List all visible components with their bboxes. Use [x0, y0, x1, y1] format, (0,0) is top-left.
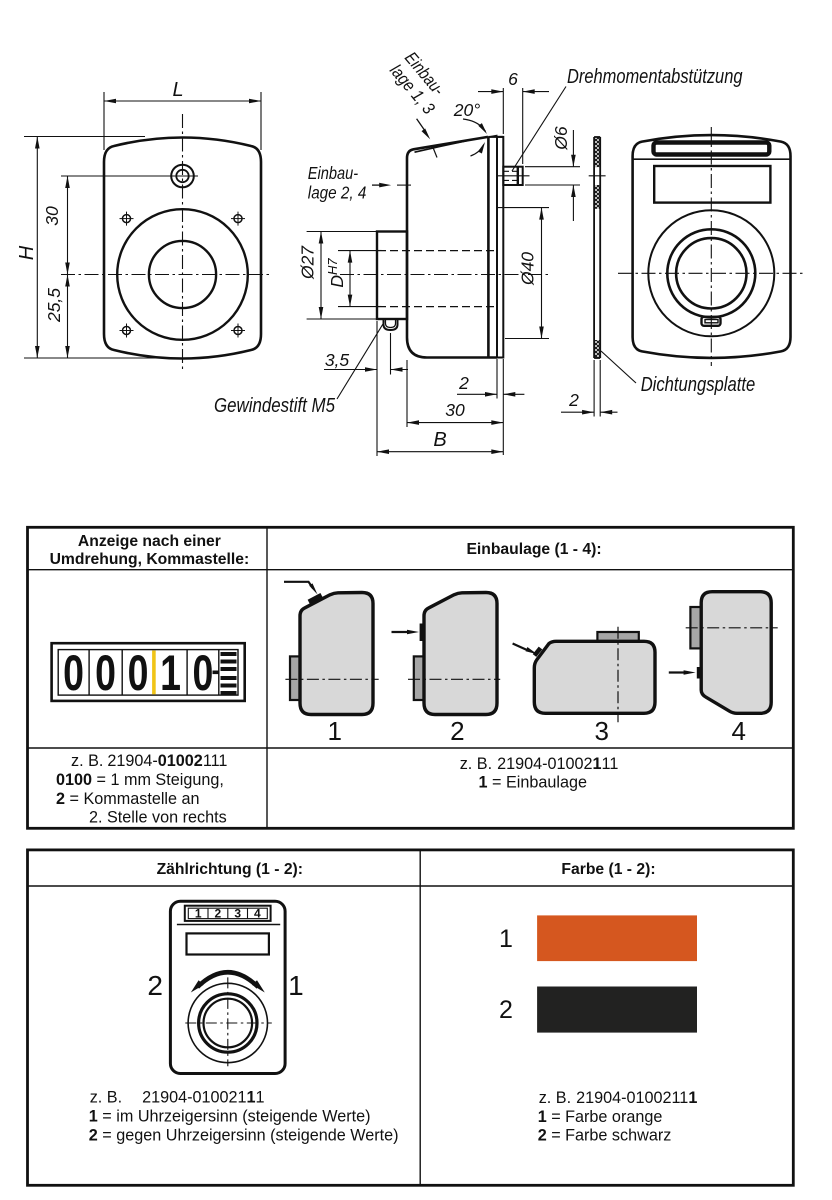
svg-text:L: L — [172, 79, 183, 101]
svg-text:Farbe (1 - 2):: Farbe (1 - 2): — [561, 861, 655, 878]
svg-text:1: 1 — [499, 925, 513, 953]
svg-text:2: 2 — [458, 373, 469, 393]
svg-text:2: 2 — [499, 996, 513, 1024]
svg-text:2 = gegen Uhrzeigersinn (steig: 2 = gegen Uhrzeigersinn (steigende Werte… — [89, 1127, 399, 1145]
svg-text:1: 1 — [195, 906, 202, 920]
svg-text:0: 0 — [95, 646, 116, 701]
svg-text:30: 30 — [42, 206, 62, 226]
svg-text:2. Stelle von rechts: 2. Stelle von rechts — [89, 809, 227, 827]
svg-text:DH7: DH7 — [325, 258, 347, 288]
svg-text:6: 6 — [508, 69, 518, 89]
svg-text:lage 2, 4: lage 2, 4 — [308, 182, 367, 202]
svg-text:Ø27: Ø27 — [298, 245, 318, 280]
svg-text:3: 3 — [594, 716, 608, 746]
svg-text:2: 2 — [568, 390, 579, 410]
svg-text:z. B.21904-01002111: z. B.21904-01002111 — [539, 1089, 698, 1107]
svg-text:0: 0 — [192, 646, 213, 701]
svg-text:Ø40: Ø40 — [518, 252, 538, 286]
svg-text:0: 0 — [63, 646, 84, 701]
svg-text:1: 1 — [160, 646, 181, 701]
svg-text:2 = Farbe schwarz: 2 = Farbe schwarz — [538, 1127, 672, 1145]
svg-text:0100 = 1 mm Steigung,: 0100 = 1 mm Steigung, — [56, 771, 224, 789]
svg-text:Anzeige nach einer: Anzeige nach einer — [78, 533, 221, 550]
svg-text:2: 2 — [215, 906, 222, 920]
svg-text:Zählrichtung (1 - 2):: Zählrichtung (1 - 2): — [157, 861, 303, 878]
svg-text:1 = im Uhrzeigersinn (steigend: 1 = im Uhrzeigersinn (steigende Werte) — [89, 1108, 371, 1126]
svg-text:20°: 20° — [453, 100, 480, 120]
svg-text:Drehmomentabstützung: Drehmomentabstützung — [567, 66, 743, 88]
svg-text:Einbaulage (1 - 4):: Einbaulage (1 - 4): — [466, 541, 601, 558]
svg-text:1: 1 — [327, 716, 341, 746]
svg-text:3,5: 3,5 — [325, 350, 350, 370]
svg-text:4: 4 — [254, 906, 261, 920]
svg-text:1 = Farbe orange: 1 = Farbe orange — [538, 1108, 663, 1126]
svg-text:Umdrehung, Kommastelle:: Umdrehung, Kommastelle: — [50, 551, 250, 568]
svg-text:30: 30 — [445, 400, 465, 420]
svg-text:H: H — [16, 245, 38, 260]
svg-text:Einbau-: Einbau- — [308, 163, 358, 183]
svg-text:z. B.21904-01002111: z. B.21904-01002111 — [90, 1088, 265, 1106]
svg-text:1 = Einbaulage: 1 = Einbaulage — [479, 773, 587, 791]
svg-text:2: 2 — [147, 970, 163, 1001]
svg-text:Ø6: Ø6 — [551, 126, 571, 151]
svg-text:z. B.21904-01002111: z. B.21904-01002111 — [460, 755, 619, 773]
svg-text:B: B — [433, 429, 446, 451]
svg-text:0: 0 — [128, 646, 149, 701]
svg-text:25,5: 25,5 — [44, 288, 64, 323]
svg-text:Dichtungsplatte: Dichtungsplatte — [641, 374, 756, 396]
svg-text:2: 2 — [450, 716, 464, 746]
svg-text:4: 4 — [731, 716, 745, 746]
svg-text:2 = Kommastelle an: 2 = Kommastelle an — [56, 790, 200, 808]
svg-text:3: 3 — [234, 906, 241, 920]
svg-text:1: 1 — [288, 970, 304, 1001]
svg-text:Gewindestift M5: Gewindestift M5 — [214, 395, 336, 417]
svg-text:z. B.21904-01002111: z. B.21904-01002111 — [71, 752, 227, 770]
